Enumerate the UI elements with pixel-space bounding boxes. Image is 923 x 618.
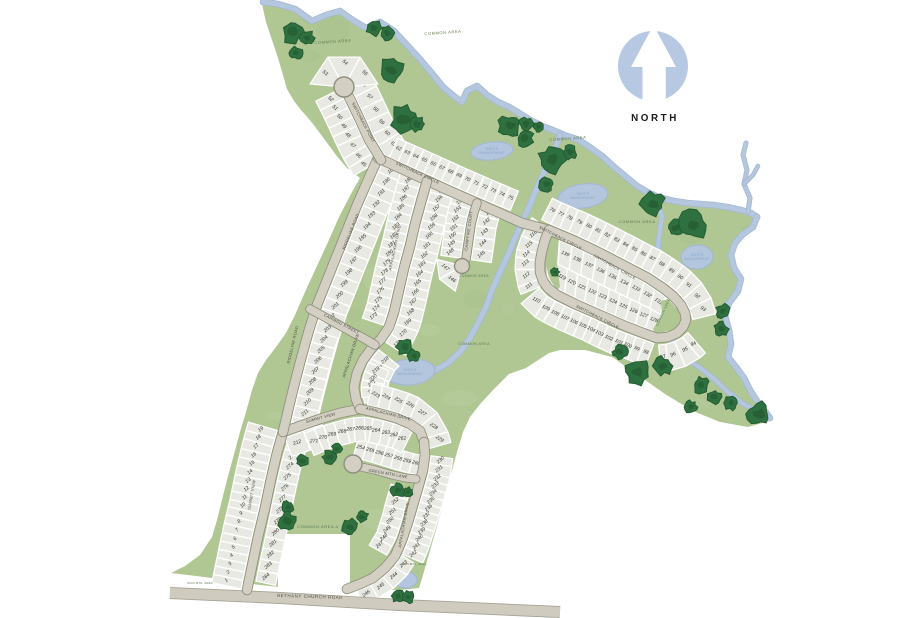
svg-text:SIGN MTN. AREA: SIGN MTN. AREA: [187, 581, 213, 585]
svg-text:271: 271: [309, 438, 319, 444]
svg-text:COMMON AREA: COMMON AREA: [424, 29, 461, 37]
svg-text:COMMON AREA: COMMON AREA: [458, 342, 490, 346]
svg-text:270: 270: [318, 435, 328, 441]
svg-text:MANAGEMENT: MANAGEMENT: [570, 196, 596, 200]
svg-text:COMMON AREA: COMMON AREA: [618, 219, 655, 224]
svg-text:MANAGEMENT: MANAGEMENT: [479, 151, 505, 155]
svg-text:268: 268: [337, 429, 347, 435]
svg-text:NORTH: NORTH: [631, 113, 679, 124]
svg-text:SIGN MTN. AREA: SIGN MTN. AREA: [401, 562, 427, 566]
svg-text:267: 267: [345, 427, 355, 433]
svg-text:269: 269: [327, 432, 337, 438]
svg-text:266: 266: [354, 425, 364, 431]
svg-text:MANAGEMENT: MANAGEMENT: [684, 257, 710, 261]
svg-text:261: 261: [397, 436, 407, 442]
svg-text:265: 265: [363, 426, 373, 432]
svg-text:COMMON AREA: COMMON AREA: [459, 274, 490, 278]
svg-text:COMMON AREA A: COMMON AREA A: [297, 524, 339, 529]
svg-text:264: 264: [371, 428, 381, 434]
svg-text:MANAGEMENT: MANAGEMENT: [397, 372, 423, 376]
